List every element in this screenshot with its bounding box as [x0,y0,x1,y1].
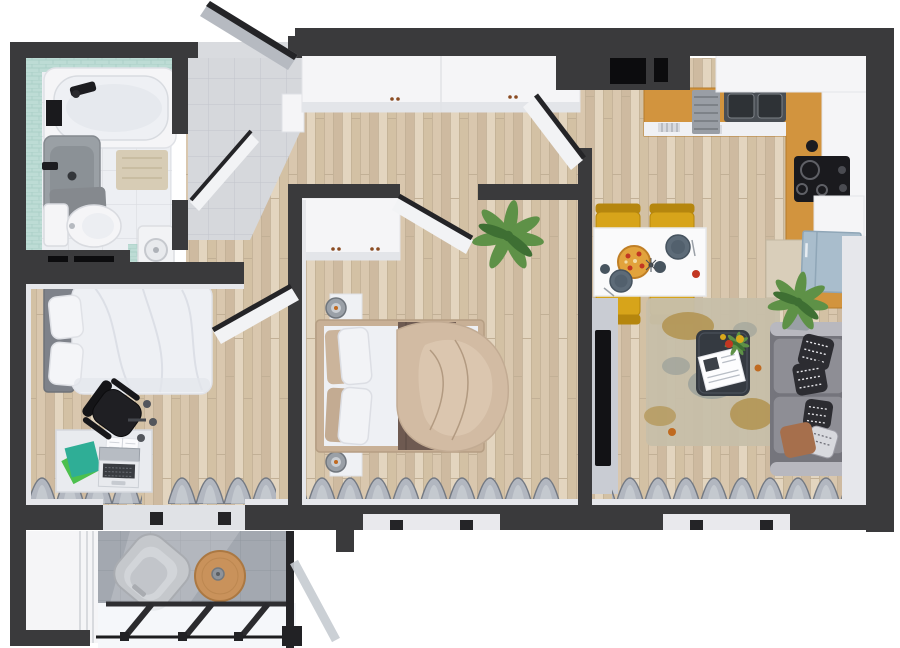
window-mullion [690,520,703,530]
wall-right [866,28,894,532]
coffee-table [696,330,750,396]
dish-rack [692,90,720,134]
pillow [48,294,84,339]
bath-mat [116,150,168,190]
wall-bottom-3 [500,505,663,530]
wall-niche [654,58,668,82]
wall-top-main [295,28,894,56]
shoe-cabinet [282,94,304,132]
bedroom1-top-wall [26,262,244,284]
round-table [195,551,245,601]
wall-niche [610,58,646,84]
window-mullion [390,520,403,530]
wall-bottom-1 [10,505,103,530]
railing-corner-block [282,626,302,646]
shower-caddy [46,100,62,126]
single-bed [72,284,212,394]
pillow [338,387,373,445]
bathroom-wall-tiles-left [26,58,42,256]
bedroom2-top-wall-right [478,184,592,200]
floor-plan-render [0,0,900,648]
laptop [98,447,139,487]
window-sill-bedroom2 [363,514,500,530]
double-bed [316,320,508,452]
door-frame-mark [218,512,231,525]
nightstand-top [326,294,362,322]
room-bedroom1 [44,284,212,394]
tomato [692,270,700,278]
wall-top-left [10,42,198,58]
floor-plan-stage [0,0,900,648]
right-wall-face [842,236,866,504]
bedroom2-wardrobe [302,198,400,260]
bathroom-wall-upper [172,58,188,134]
balcony-bottom-left-frame [10,630,90,646]
toilet [44,204,121,247]
tv [595,330,611,466]
living-left-wall [578,148,592,505]
pillow [338,327,373,385]
entry-hall [282,94,304,132]
window-mullion [460,520,473,530]
bedroom2-left-wall [288,184,302,505]
sink-faucet [42,162,58,170]
bathroom-wall-lower [172,200,188,250]
balcony-post-top [336,528,354,552]
door-frame-mark [150,512,163,525]
bedroom2-top-wall-left [288,184,400,198]
balcony-left-wall [10,530,26,634]
cabinet-above-fridge [814,196,864,236]
wall-left [10,42,26,532]
kettle [806,140,818,152]
wall-bottom-2 [245,505,363,530]
wall-bottom-4 [790,505,894,530]
cooktop [794,156,850,202]
window-mullion [760,520,773,530]
upper-cabinets-top [716,52,868,92]
